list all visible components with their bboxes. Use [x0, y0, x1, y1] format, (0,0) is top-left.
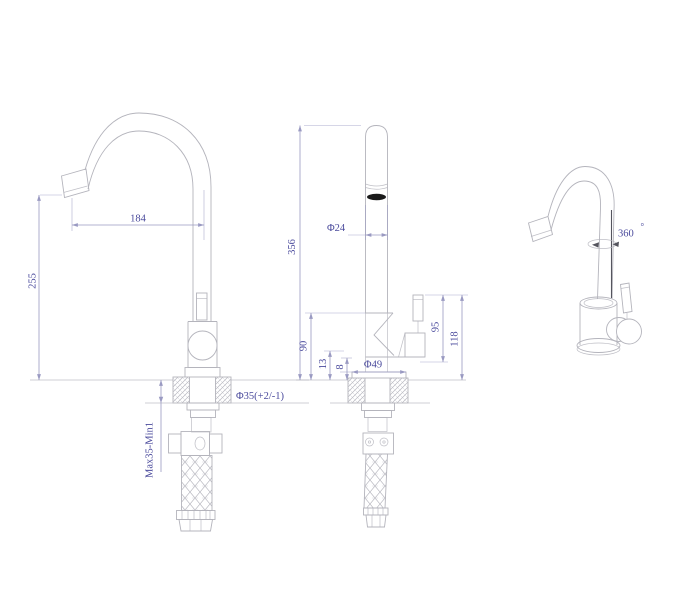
front-view: 356 Φ24 90 13 8 Φ49 95 118	[287, 126, 468, 528]
hose-end-rings-front	[364, 508, 389, 515]
lever-handle-front	[413, 295, 423, 321]
braided-hose-front	[364, 454, 388, 508]
dim-13: 13	[318, 359, 329, 370]
dim-mounting-range: Max35-Min1	[145, 422, 156, 478]
dim-hole-diameter: Φ35(+2/-1)	[236, 391, 285, 402]
drawing-canvas: 184 255 Max35-Min1 Φ35(+2/-1)	[0, 0, 691, 600]
hose-end-ring-lines-front	[368, 508, 383, 515]
knob-front	[617, 319, 642, 344]
hose-connector-nut-front	[366, 515, 386, 527]
spout-tube	[366, 126, 388, 314]
braided-hose	[182, 456, 213, 511]
deck-hatch-right	[216, 378, 231, 403]
hose-connector-nut-lines-front	[372, 515, 380, 527]
spout-tip	[62, 169, 90, 198]
deck-hatch-left-front	[349, 379, 365, 403]
spout-inner-curve-3d	[551, 181, 601, 299]
hose-fitting-front	[363, 433, 394, 454]
dim-overall-height: 356	[287, 239, 298, 255]
body-bevel	[374, 313, 394, 356]
hose-end-ring-lines	[182, 511, 210, 520]
locknut-step-1	[187, 403, 219, 410]
hose-connector-nut-lines	[190, 520, 201, 532]
handle-base-slant	[399, 333, 406, 357]
spout-outer-curve-3d	[548, 167, 614, 300]
dim-handle-118: 118	[450, 331, 461, 346]
side-view: 184 255 Max35-Min1 Φ35(+2/-1)	[28, 113, 310, 531]
dim-spout-tube-diameter: Φ24	[327, 223, 346, 234]
fitting-dot-right	[383, 441, 385, 443]
dim-base-diameter: Φ49	[364, 360, 382, 371]
handle-base	[405, 333, 425, 357]
fitting-dot-left	[368, 441, 370, 443]
swivel-arrow-left	[592, 242, 599, 247]
mounting-range-arrow-down	[159, 397, 163, 403]
dim-body-height: 90	[299, 341, 310, 352]
shank-neck	[192, 418, 212, 433]
locknut-step-2	[191, 410, 216, 418]
shank-neck-front	[368, 418, 387, 432]
locknut-step-1-front	[362, 403, 395, 411]
hose-fitting-hole	[195, 437, 205, 450]
spout-collar-line-1	[366, 184, 388, 186]
fitting-hole-right	[380, 438, 388, 446]
body-top-rim-inner	[584, 299, 613, 308]
dim-8: 8	[335, 364, 346, 369]
deck-hatch-left	[174, 378, 190, 403]
dim-swivel-angle: 360	[618, 229, 634, 240]
dim-spout-height: 255	[28, 273, 39, 289]
fitting-hole-left	[366, 438, 374, 446]
lever-cap-3d	[621, 287, 630, 289]
ball-joint	[188, 331, 217, 360]
hose-fitting-right-lug	[210, 434, 223, 453]
perspective-view: 360 °	[529, 167, 645, 356]
hose-fitting-left-lug	[169, 434, 182, 453]
aerator-outlet	[367, 194, 386, 200]
faucet-technical-drawing: 184 255 Max35-Min1 Φ35(+2/-1)	[0, 0, 691, 600]
locknut-step-2-front	[365, 411, 392, 418]
hose-connector-nut	[179, 520, 213, 532]
spout-tip-3d	[529, 217, 553, 242]
dim-spout-reach: 184	[130, 214, 147, 225]
dim-degree-symbol: °	[641, 222, 645, 232]
spout-collar-line-2	[366, 188, 388, 190]
lever-handle-side	[197, 293, 208, 320]
spout-outer-curve	[85, 113, 211, 322]
deck-hatch-right-front	[390, 379, 408, 403]
base-rim-lower	[577, 343, 620, 355]
dim-handle-95: 95	[431, 322, 442, 333]
spout-inner-curve	[88, 131, 193, 322]
